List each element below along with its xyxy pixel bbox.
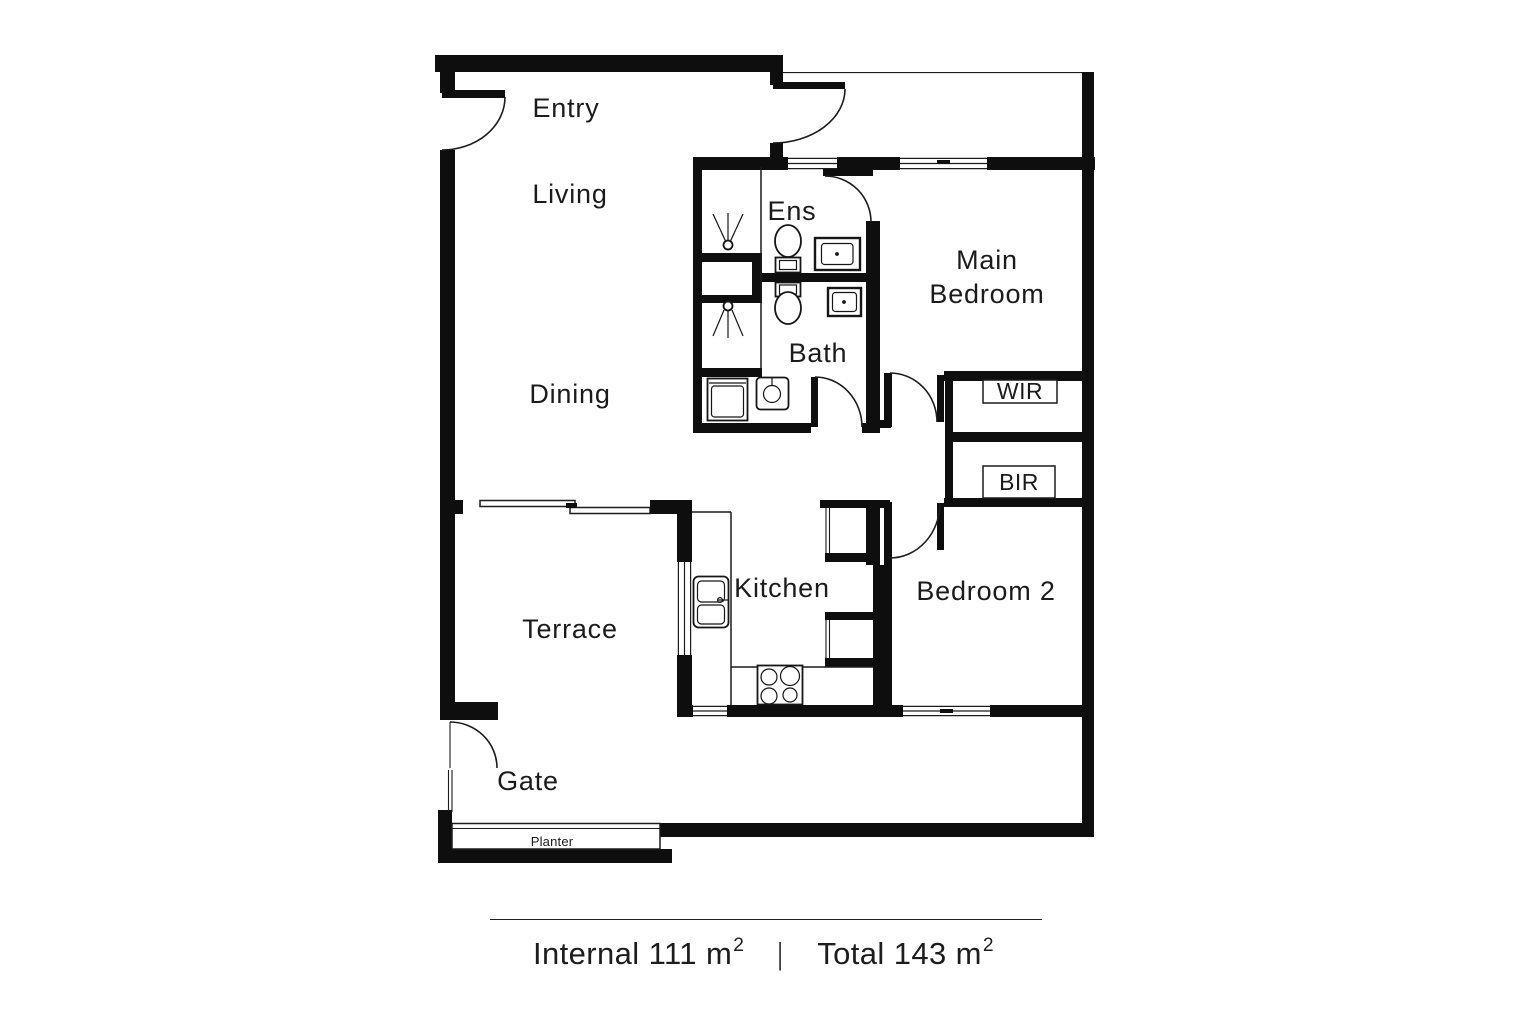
footer-divider-line [490, 919, 1042, 920]
cooktop-icon [758, 666, 803, 705]
total-area-label: Total [817, 936, 884, 971]
room-label-living: Living [532, 179, 607, 209]
floorplan-drawing: Entry Living Dining Ens Bath Main Bedroo… [0, 0, 1536, 1024]
footer-areas-text: Internal 111 m2 | Total 143 m2 [363, 936, 1163, 972]
bath-door-swing [811, 377, 862, 427]
room-label-terrace: Terrace [522, 614, 618, 644]
kitchen-sink-icon [694, 577, 729, 628]
ensuite-window [788, 158, 837, 168]
floorplan-page: Entry Living Dining Ens Bath Main Bedroo… [0, 0, 1536, 1024]
kitchen-window [693, 706, 727, 715]
ensuite-vanity-icon [815, 238, 860, 270]
bath-vanity-icon [828, 288, 861, 316]
internal-area-value: 111 [649, 936, 697, 971]
main-bedroom-window [900, 158, 987, 168]
main-bedroom-door-swing [890, 373, 944, 422]
gate-door-swing [450, 722, 497, 768]
room-label-planter: Planter [531, 834, 574, 849]
ensuite-door-swing [823, 169, 873, 222]
bath-toilet-icon [775, 283, 801, 325]
room-label-entry: Entry [532, 93, 599, 123]
room-label-bedroom2: Bedroom 2 [916, 576, 1055, 606]
bedroom2-door-swing [890, 503, 944, 558]
internal-area-unit: m2 [706, 936, 743, 971]
laundry-tub-icon [757, 378, 789, 410]
front-door-swing [773, 82, 845, 143]
total-area-unit: m2 [956, 936, 993, 971]
walls [435, 55, 1095, 863]
fixtures [694, 213, 862, 705]
bath-shower-icon [713, 302, 743, 339]
room-label-gate: Gate [497, 766, 559, 796]
total-area-value: 143 [894, 936, 947, 971]
entry-door-swing [442, 90, 505, 150]
ensuite-toilet-icon [775, 225, 801, 273]
gate-fence-line [449, 770, 453, 812]
terrace-window [678, 562, 690, 655]
room-label-ens: Ens [768, 196, 817, 226]
ensuite-shower-icon [713, 213, 743, 250]
bedroom2-window [903, 706, 990, 715]
room-label-bir: BIR [999, 469, 1039, 495]
room-labels: Entry Living Dining Ens Bath Main Bedroo… [497, 93, 1056, 849]
room-label-main-bedroom-line2: Bedroom [929, 279, 1044, 309]
room-label-bath: Bath [789, 338, 848, 368]
room-label-wir: WIR [997, 378, 1043, 404]
washing-machine-icon [708, 379, 748, 421]
room-label-dining: Dining [529, 379, 610, 409]
sliding-door [480, 501, 650, 514]
footer-separator: | [778, 936, 784, 972]
room-label-main-bedroom-line1: Main [956, 245, 1018, 275]
room-label-kitchen: Kitchen [734, 573, 830, 603]
internal-area-label: Internal [533, 936, 640, 971]
